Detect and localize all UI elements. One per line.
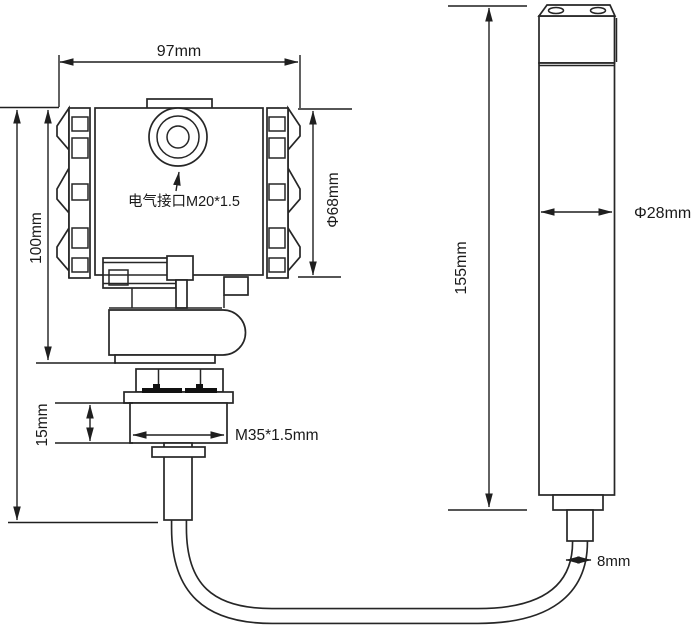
process-body-shelf [115,355,215,363]
probe-top-cap [539,16,615,63]
bracket-right-step [224,277,248,295]
dim-label-155mm: 155mm [453,241,470,294]
bracket-post [176,280,187,308]
bracket-block [167,256,193,280]
dim-label-m35: M35*1.5mm [235,427,319,444]
dim-label-28mm: Φ28mm [634,205,691,222]
gasket-strip [142,388,182,393]
label-electrical-interface: 电气接口M20*1.5 [128,193,240,210]
dim-label-100mm: 100mm [28,212,45,264]
stem-collar [152,447,205,457]
gasket-strip [185,388,217,393]
cable [179,512,580,616]
dimension-68mm: Φ68mm [298,109,352,277]
gasket-bolt [153,384,160,388]
cable-outline [179,512,580,616]
dim-label-8mm: 8mm [597,553,630,570]
probe-gland [553,495,603,510]
right-cap-fins [288,108,300,278]
dim-label-97mm: 97mm [157,43,201,60]
flange-plate [124,392,233,403]
process-body [109,310,246,355]
drawing-svg: 97mm 100mm Φ68mm 15mm M35*1.5mm 155mm [0,0,700,629]
left-cap-fins [57,108,69,278]
dimension-155mm: 155mm [448,6,527,510]
dim-label-15mm: 15mm [34,403,51,446]
transmitter-assembly [57,99,300,520]
probe-cap-top-face [539,5,615,16]
thread-cylinder [130,403,227,443]
dim-label-68mm: Φ68mm [325,172,342,227]
probe-stem [567,510,593,541]
gasket-bolt [196,384,203,388]
probe [539,5,617,541]
technical-drawing-level-transmitter: 97mm 100mm Φ68mm 15mm M35*1.5mm 155mm [0,0,700,629]
dimension-15mm: 15mm [34,403,133,447]
probe-body [539,63,615,495]
cable-fill [179,512,580,616]
